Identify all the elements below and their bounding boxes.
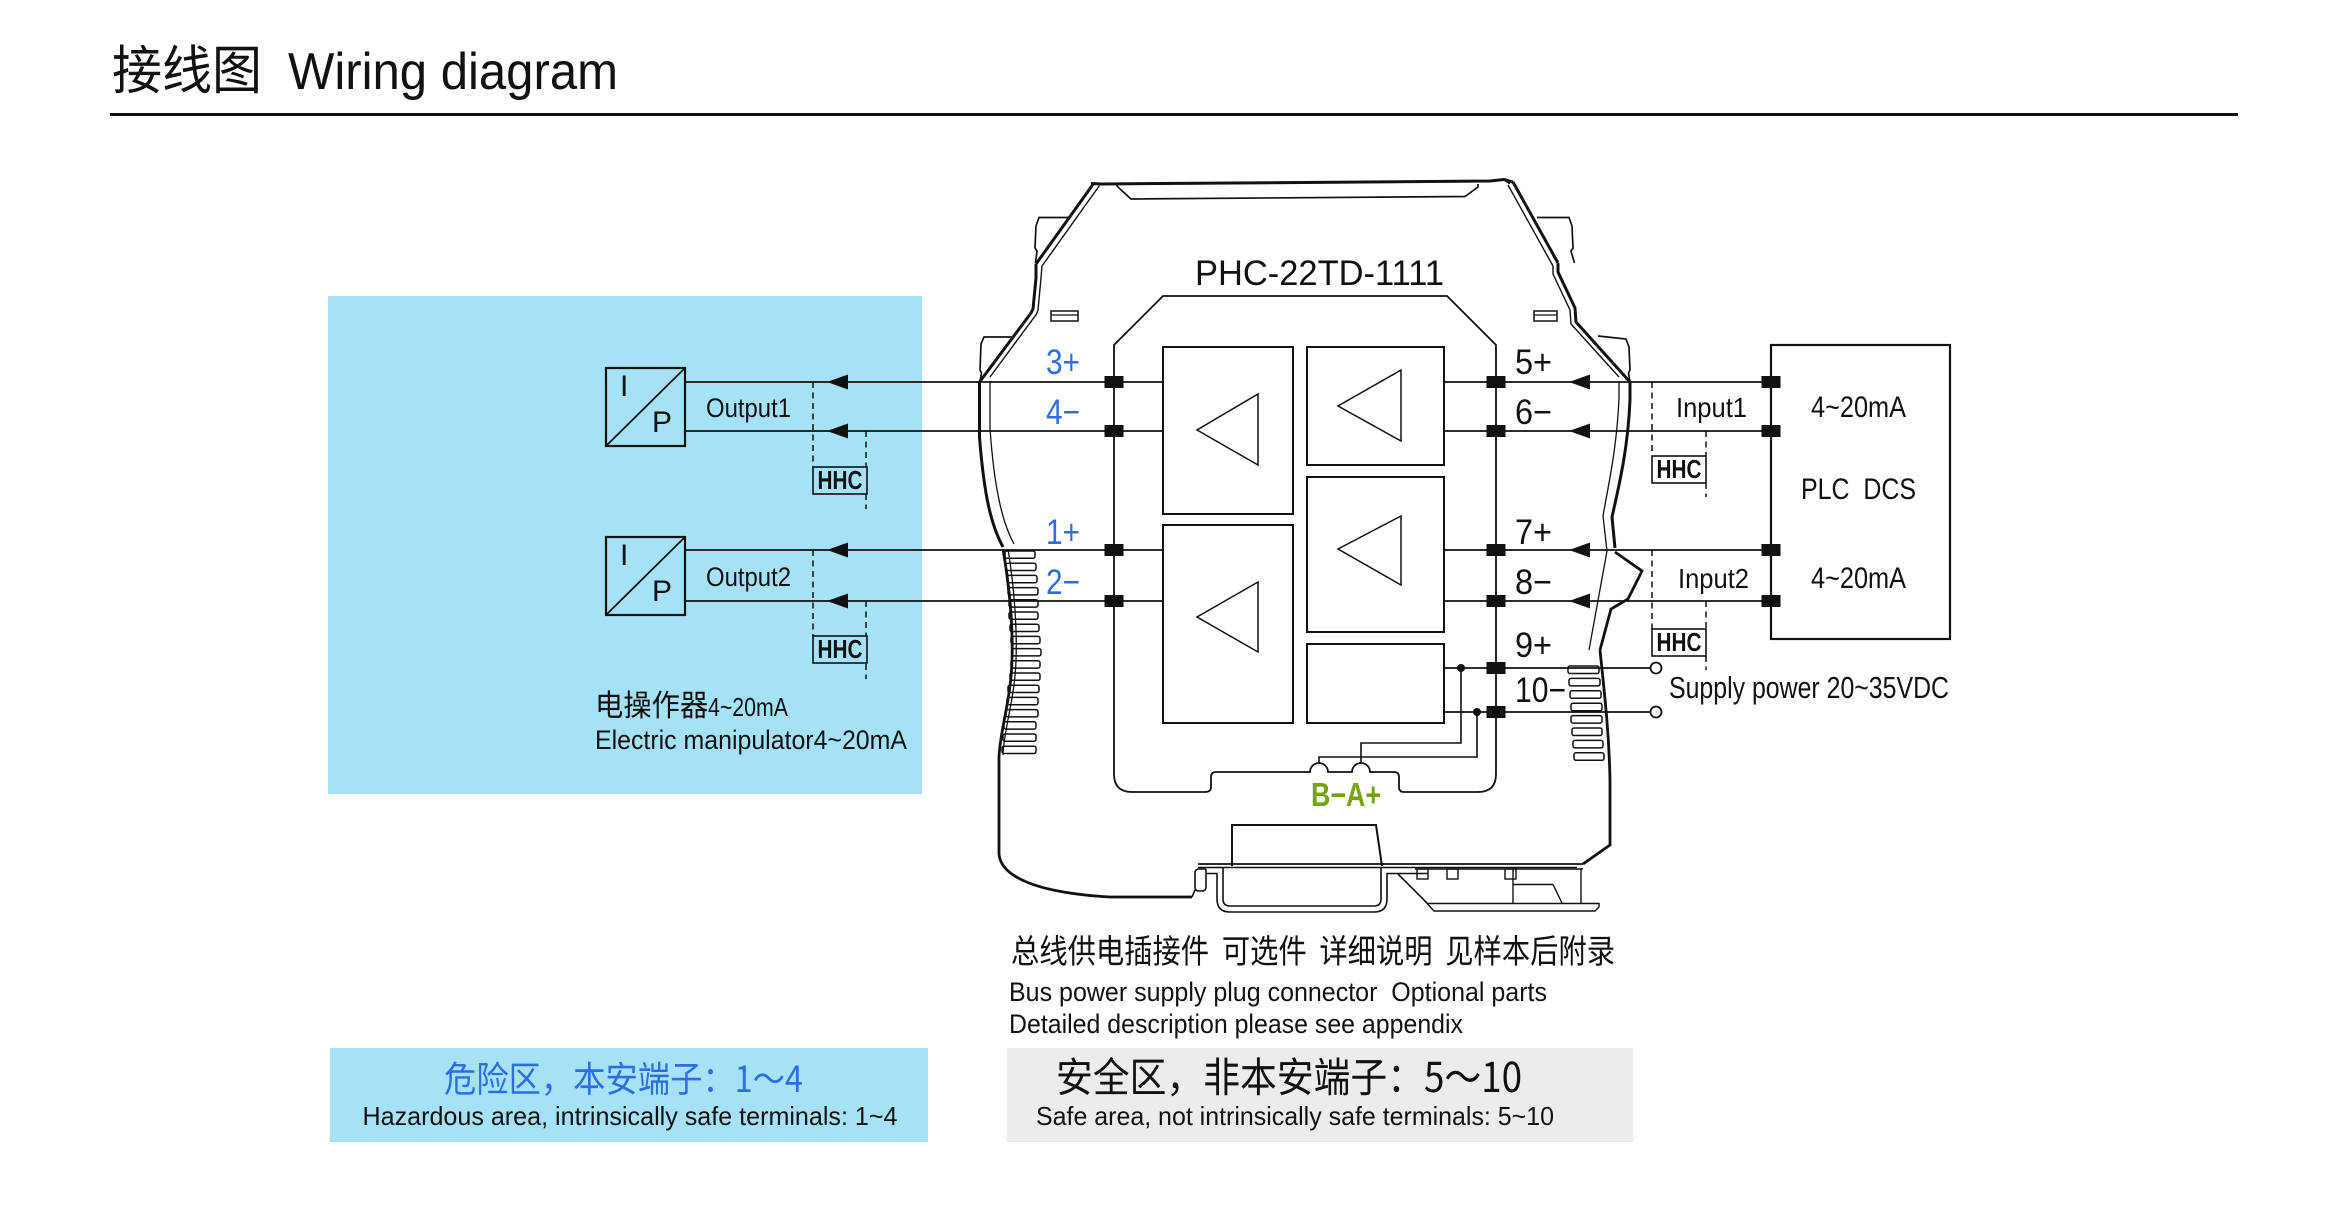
- svg-text:I: I: [620, 370, 628, 403]
- svg-text:PHC-22TD-1111: PHC-22TD-1111: [1195, 254, 1444, 293]
- svg-text:Output2: Output2: [706, 562, 791, 592]
- svg-text:Safe area, not intrinsically s: Safe area, not intrinsically safe termin…: [1036, 1101, 1554, 1131]
- svg-text:HHC: HHC: [1657, 627, 1702, 657]
- svg-text:Output1: Output1: [706, 393, 791, 423]
- svg-text:9+: 9+: [1515, 625, 1552, 665]
- svg-text:Detailed description please se: Detailed description please see appendix: [1009, 1009, 1463, 1039]
- svg-text:5+: 5+: [1515, 342, 1552, 382]
- svg-text:B−A+: B−A+: [1311, 776, 1381, 813]
- svg-text:HHC: HHC: [818, 634, 863, 664]
- svg-text:6−: 6−: [1515, 392, 1552, 432]
- svg-text:HHC: HHC: [1657, 454, 1702, 484]
- svg-text:Input2: Input2: [1678, 563, 1749, 594]
- svg-text:P: P: [652, 575, 672, 608]
- svg-text:Electric manipulator4~20mA: Electric manipulator4~20mA: [595, 725, 907, 755]
- svg-text:Bus power supply plug connecto: Bus power supply plug connector Optional…: [1009, 977, 1547, 1007]
- svg-text:I: I: [620, 539, 628, 572]
- svg-text:4~20mA: 4~20mA: [1811, 562, 1906, 595]
- svg-text:Supply power 20~35VDC: Supply power 20~35VDC: [1669, 670, 1949, 705]
- svg-text:4~20mA: 4~20mA: [708, 692, 789, 722]
- svg-text:PLC DCS: PLC DCS: [1801, 473, 1916, 506]
- svg-text:Wiring diagram: Wiring diagram: [288, 42, 618, 100]
- svg-text:Input1: Input1: [1676, 392, 1747, 423]
- svg-text:1+: 1+: [1046, 512, 1080, 552]
- svg-text:4−: 4−: [1046, 392, 1080, 432]
- svg-text:HHC: HHC: [818, 465, 863, 495]
- svg-text:7+: 7+: [1515, 512, 1552, 552]
- svg-text:Hazardous area, intrinsically: Hazardous area, intrinsically safe termi…: [363, 1101, 898, 1131]
- svg-text:3+: 3+: [1046, 342, 1080, 382]
- svg-text:8−: 8−: [1515, 562, 1552, 602]
- svg-text:P: P: [652, 406, 672, 439]
- svg-text:4~20mA: 4~20mA: [1811, 391, 1906, 424]
- svg-text:2−: 2−: [1046, 562, 1080, 602]
- svg-text:10−: 10−: [1515, 670, 1566, 710]
